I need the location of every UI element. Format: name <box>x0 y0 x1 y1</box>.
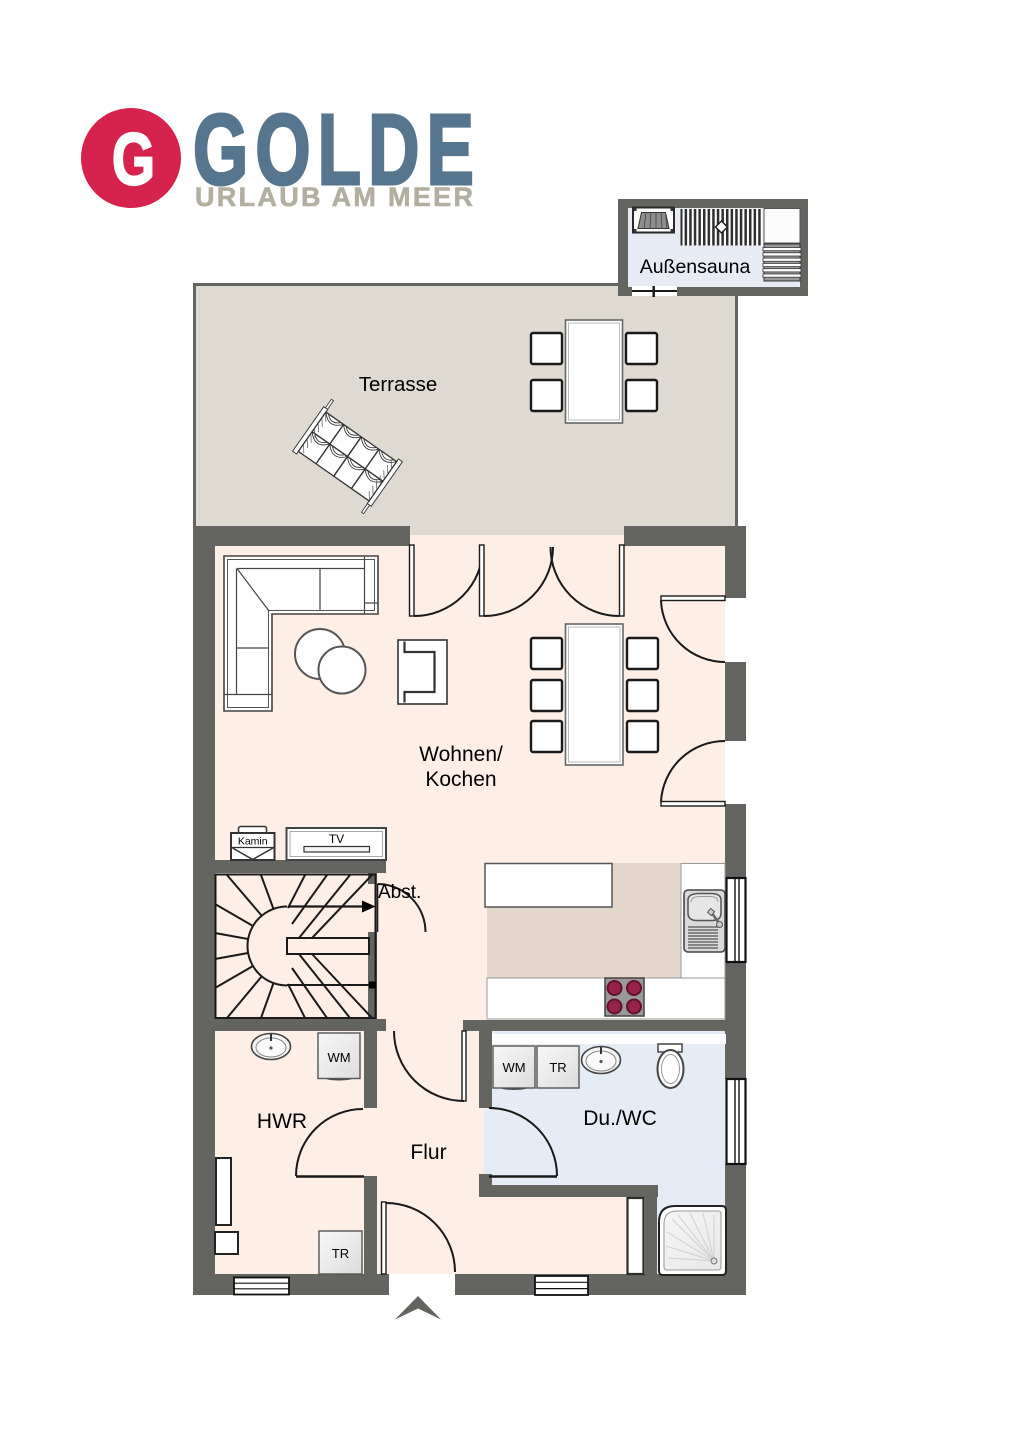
svg-text:WM: WM <box>502 1060 525 1075</box>
svg-text:Flur: Flur <box>410 1141 446 1164</box>
svg-text:TV: TV <box>329 832 344 846</box>
svg-text:WM: WM <box>327 1050 350 1065</box>
svg-text:Abst.: Abst. <box>378 882 421 903</box>
svg-text:Du./WC: Du./WC <box>583 1107 657 1130</box>
svg-text:Wohnen/: Wohnen/ <box>419 743 503 766</box>
svg-text:G: G <box>112 120 155 201</box>
svg-text:Außensauna: Außensauna <box>640 256 751 278</box>
svg-text:HWR: HWR <box>257 1110 307 1133</box>
svg-text:Kochen: Kochen <box>425 768 496 791</box>
svg-text:Terrasse: Terrasse <box>359 373 438 396</box>
svg-text:Kamin: Kamin <box>238 836 268 848</box>
svg-text:TR: TR <box>549 1060 566 1075</box>
svg-text:TR: TR <box>332 1246 349 1261</box>
